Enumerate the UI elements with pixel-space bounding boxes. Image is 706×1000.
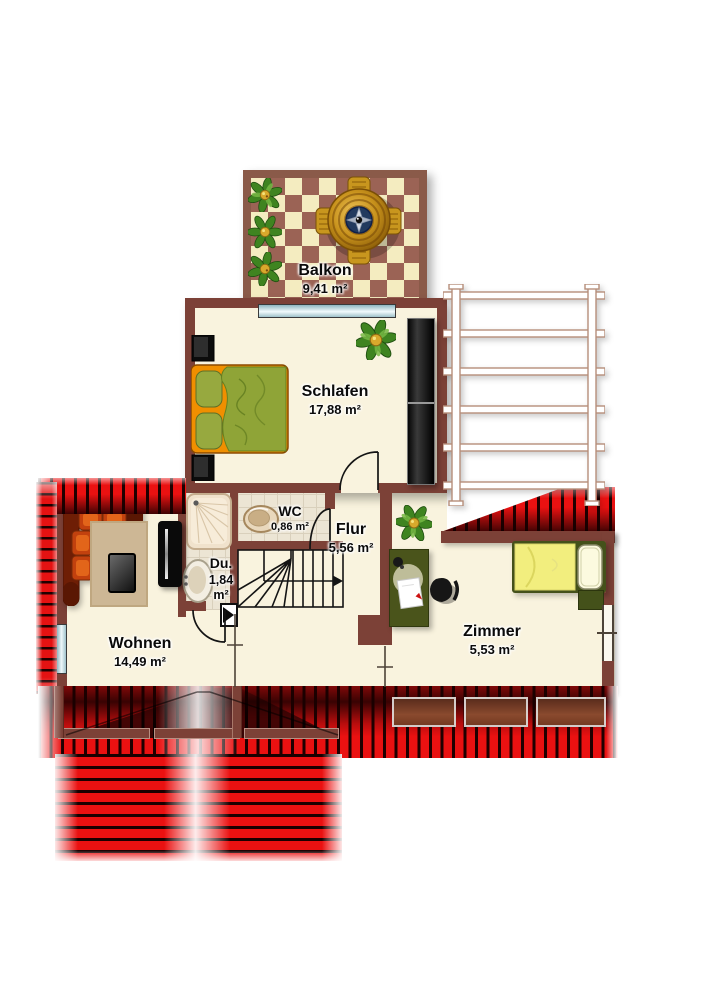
schlafen-label: Schlafen 17,88 m² <box>265 382 405 418</box>
dusche-area-value: 1,84 <box>194 573 248 589</box>
wohnen-label: Wohnen 14,49 m² <box>75 634 205 670</box>
zimmer-name: Zimmer <box>430 622 554 642</box>
flur-name: Flur <box>311 520 391 540</box>
knee-wall-lines <box>227 614 393 687</box>
dormer-ridge-lines <box>66 692 338 735</box>
dusche-area-unit: m² <box>194 588 248 604</box>
dusche-label: Du. 1,84 m² <box>194 555 248 604</box>
wohnen-area: 14,49 m² <box>75 654 205 670</box>
flur-label: Flur 5,56 m² <box>311 520 391 556</box>
zimmer-label: Zimmer 5,53 m² <box>430 622 554 658</box>
balkon-name: Balkon <box>265 261 385 281</box>
schlafen-area: 17,88 m² <box>265 402 405 418</box>
wc-name: WC <box>258 503 322 521</box>
schlafen-name: Schlafen <box>265 382 405 402</box>
stairs-icon <box>238 550 343 607</box>
stairs-direction-arrow <box>333 576 343 587</box>
plan-linework <box>0 0 706 1000</box>
zimmer-area: 5,53 m² <box>430 642 554 658</box>
bedroom-door-swing <box>340 452 378 490</box>
wohnen-name: Wohnen <box>75 634 205 654</box>
balkon-area: 9,41 m² <box>265 281 385 297</box>
floor-plan: Balkon 9,41 m² Schlafen 17,88 m² WC 0,86… <box>0 0 706 1000</box>
flur-area: 5,56 m² <box>311 540 391 556</box>
dusche-name: Du. <box>194 555 248 573</box>
balkon-label: Balkon 9,41 m² <box>265 261 385 297</box>
